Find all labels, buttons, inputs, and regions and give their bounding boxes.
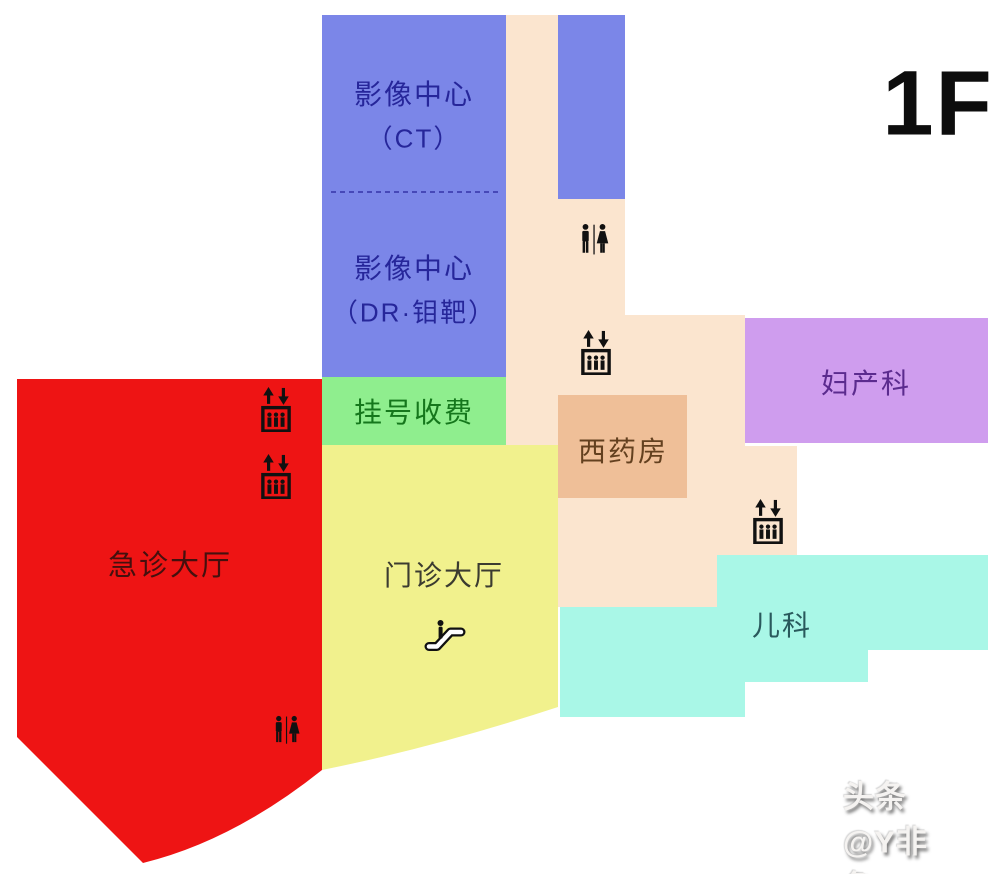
registration-label: 挂号收费 <box>354 391 474 431</box>
floor-indicator: 1F <box>882 52 993 157</box>
floor-plan-drawing <box>0 0 1005 874</box>
obstetrics-label: 妇产科 <box>821 362 911 402</box>
watermark: 头条@Y非鱼Y <box>843 772 951 874</box>
annex-block <box>558 15 625 199</box>
outpatient-hall-label: 门诊大厅 <box>384 554 504 594</box>
outpatient-hall-block <box>322 445 558 770</box>
imaging-ct-label-line1: 影像中心 <box>354 73 474 113</box>
emergency-hall-block <box>17 379 322 863</box>
imaging-dr-label-line1: 影像中心 <box>354 247 474 287</box>
emergency-hall-label: 急诊大厅 <box>108 542 232 584</box>
floor-plan-1f: 影像中心 （CT） 影像中心 （DR·钼靶） 挂号收费 急诊大厅 门诊大厅 西药… <box>0 0 1005 874</box>
pharmacy-label: 西药房 <box>578 430 668 470</box>
imaging-dr-label-line2: （DR·钼靶） <box>332 293 496 330</box>
pediatrics-label: 儿科 <box>752 604 812 644</box>
imaging-ct-label-line2: （CT） <box>367 119 462 156</box>
